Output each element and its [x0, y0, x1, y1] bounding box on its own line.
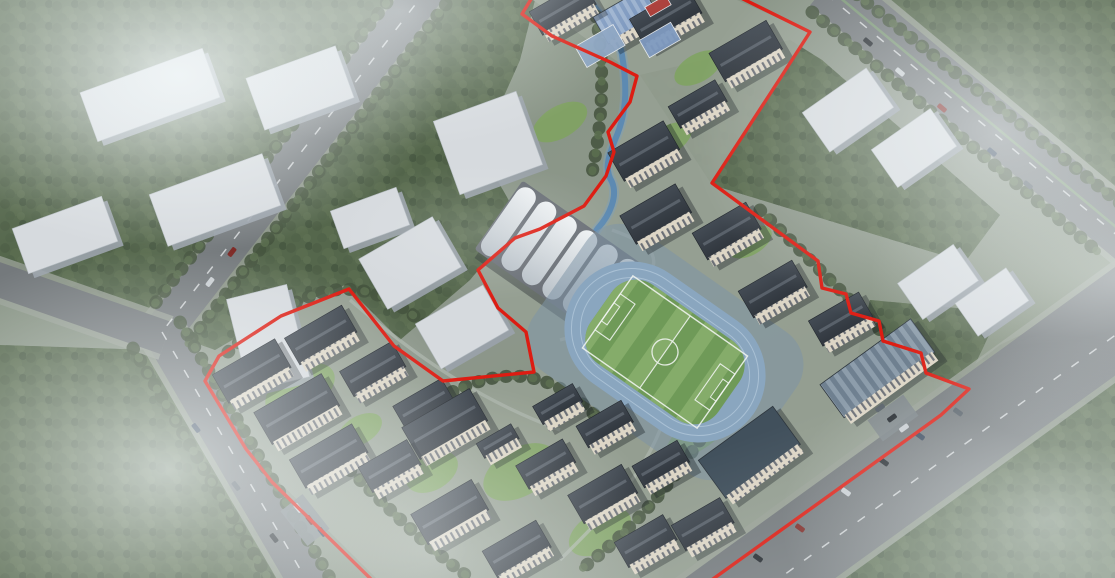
aerial-site-plan-rendering: [0, 0, 1115, 578]
scene-svg: [0, 0, 1115, 578]
